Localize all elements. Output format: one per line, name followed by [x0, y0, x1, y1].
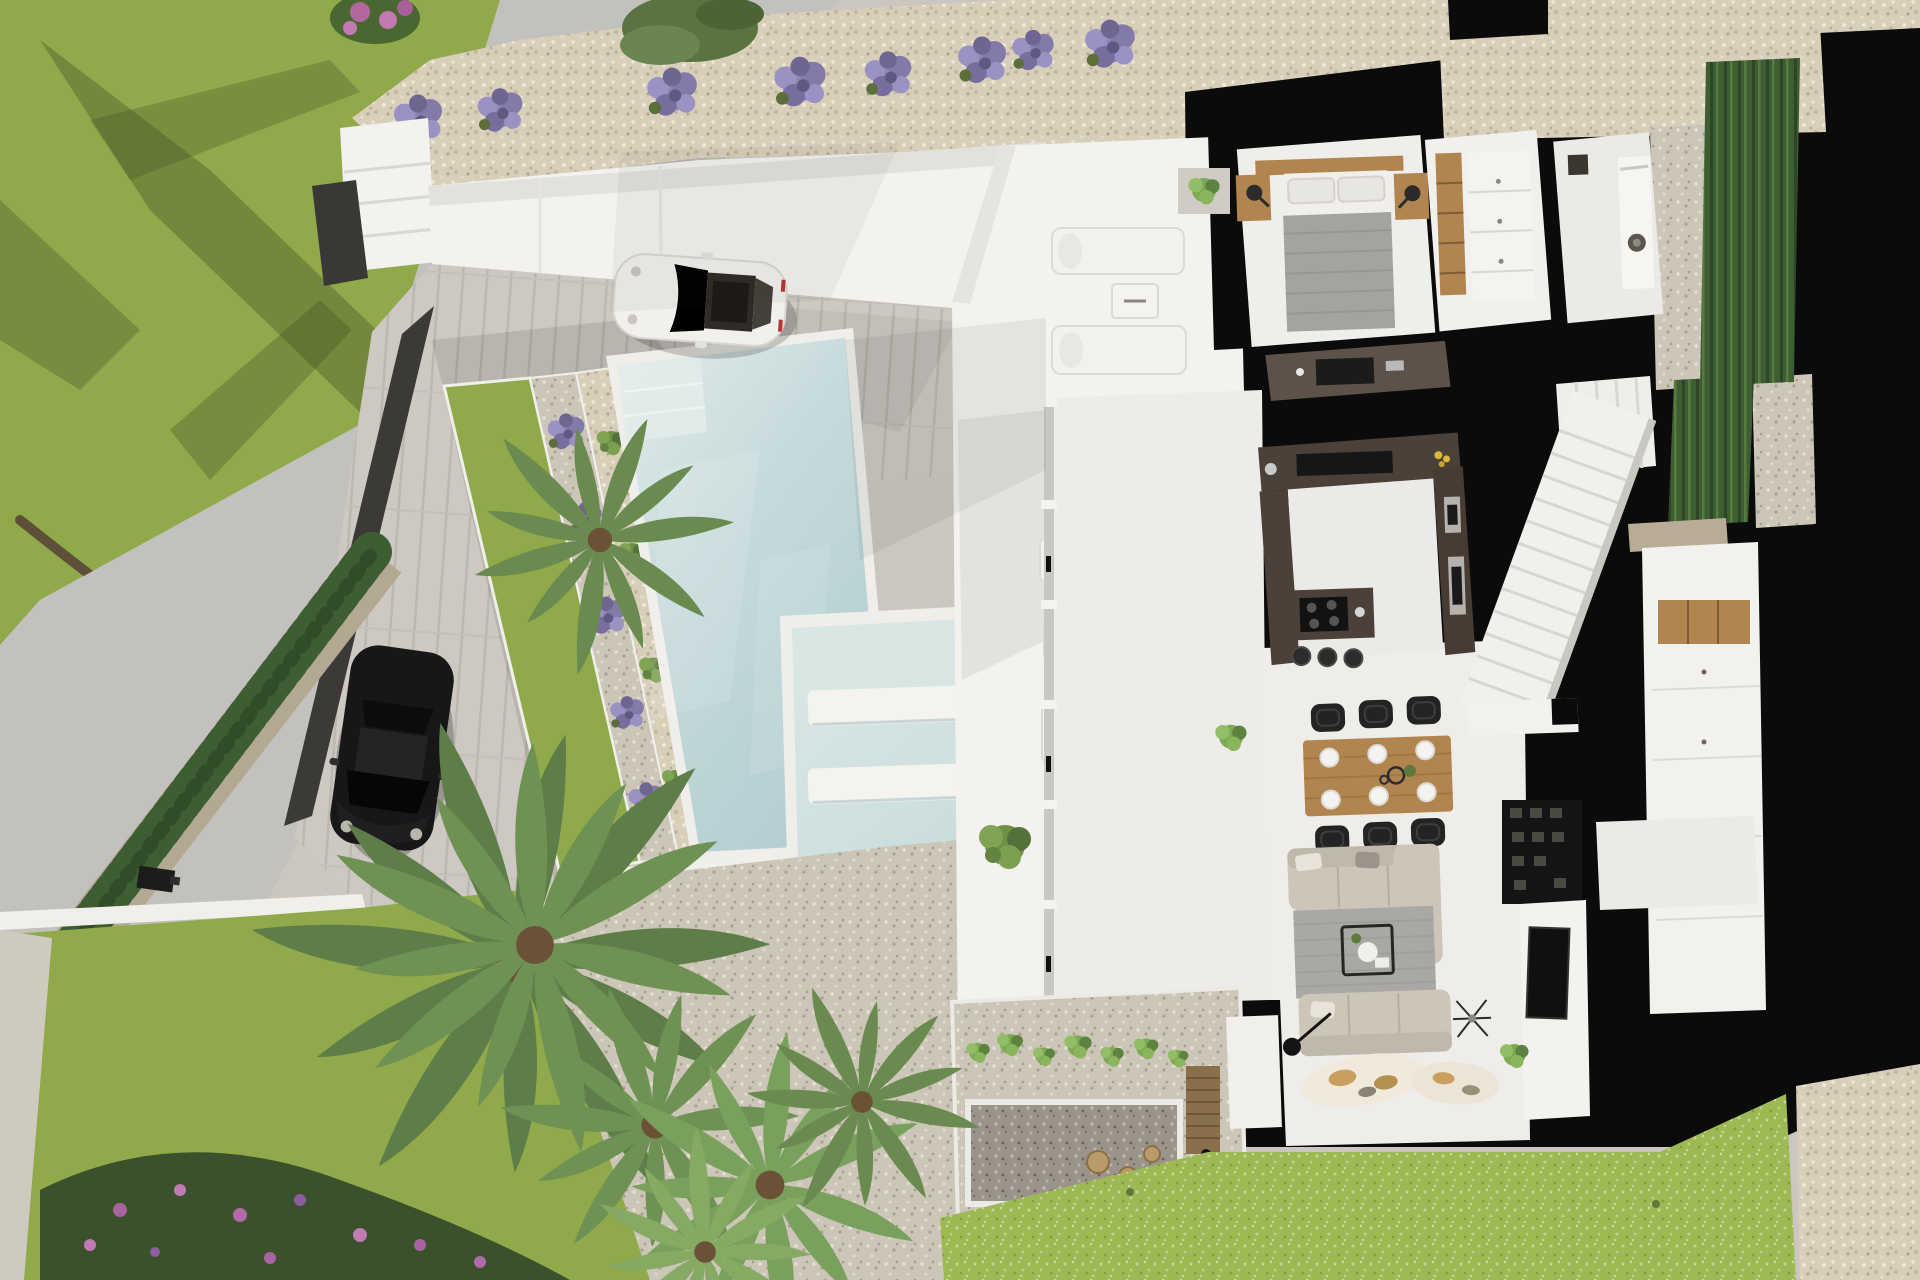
bar-stool: [1292, 647, 1311, 666]
sofa-pillow: [1310, 1001, 1335, 1019]
black-corner: [1448, 0, 1548, 40]
dining-chair: [1310, 703, 1345, 732]
door-handle: [1046, 556, 1051, 572]
bed-pillow: [1288, 178, 1335, 204]
hedge-strip: [1668, 376, 1754, 526]
vanity-counter: [1618, 156, 1655, 289]
pool-steps: [618, 357, 707, 442]
clay-pot: [1144, 1146, 1160, 1162]
gravel-corner: [1796, 1064, 1920, 1280]
bar-stool: [1344, 649, 1363, 668]
timber-deck: [1186, 1066, 1220, 1154]
dining-area: [1301, 695, 1454, 854]
bar-stool: [1318, 648, 1337, 667]
dining-chair: [1406, 696, 1441, 725]
sofa-pillow: [1355, 851, 1380, 868]
dining-chair: [1358, 699, 1393, 728]
courtyard-wall: [1226, 1015, 1282, 1129]
wardrobe-cabinet: [1467, 150, 1534, 302]
kitchenette-counter: [1316, 357, 1375, 385]
island-hob: [1299, 596, 1348, 632]
door-handle: [1046, 756, 1051, 772]
planter-box: [1178, 168, 1230, 214]
aerial-villa-render: [0, 0, 1920, 1280]
render-canvas: [0, 0, 1920, 1280]
hall-floor: [1048, 390, 1268, 1006]
door-handle: [1046, 956, 1051, 972]
car-roof: [354, 727, 427, 780]
clay-pot: [1087, 1151, 1109, 1173]
bathroom: [1553, 132, 1663, 324]
dining-chair: [1411, 818, 1446, 847]
cooktop: [1296, 451, 1393, 476]
tv-screen: [1526, 927, 1569, 1018]
pantry-wood-shelf: [1658, 600, 1750, 644]
wall-art: [1568, 154, 1589, 175]
gravel-sliver: [1752, 374, 1816, 528]
white-room: [1596, 816, 1758, 910]
bedroom: [1234, 135, 1435, 348]
bed-pillow: [1338, 176, 1385, 202]
hedge-strip: [1700, 58, 1800, 386]
wardrobe-room: [1425, 130, 1552, 332]
